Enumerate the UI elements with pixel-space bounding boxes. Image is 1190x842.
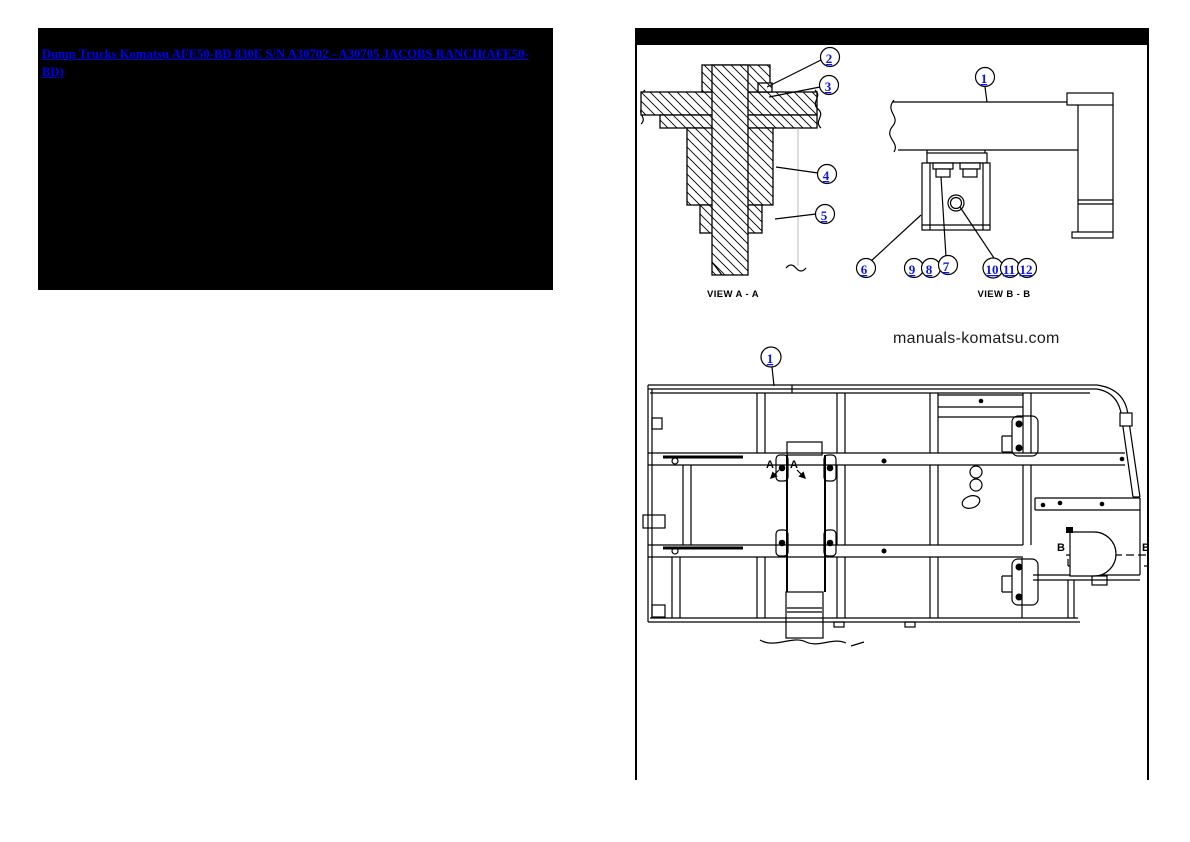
leader-5 [775,214,816,219]
svg-text:11: 11 [1003,262,1015,277]
callout-12[interactable]: 12 [1018,259,1037,278]
view-b-label: VIEW B - B [977,289,1030,300]
canopy [1097,385,1140,497]
leader-2 [767,60,821,87]
svg-text:3: 3 [825,79,832,94]
callout-4[interactable]: 4 [818,165,837,184]
fastener-dots [672,399,1124,554]
cylinder-end [1066,527,1116,585]
section-b-right: B [1142,542,1149,554]
section-b-left: B [1057,542,1065,554]
callout-3[interactable]: 3 [820,76,839,95]
beam-break-wavy [760,640,864,646]
leader-6 [870,215,921,262]
header-black-box: Dump Trucks Komatsu AFE50-BD 830E S/N A3… [38,28,553,290]
svg-text:7: 7 [943,259,950,274]
svg-text:5: 5 [821,208,828,223]
svg-text:6: 6 [861,262,868,277]
svg-text:1: 1 [981,71,988,86]
bottom-feet [834,622,915,627]
leader-4 [776,167,818,173]
view-a-drawing: 2 3 4 5 VIEW A - A [641,48,840,301]
view-a-label: VIEW A - A [707,289,759,300]
leader-1-main [772,367,774,386]
bolt-2-body [963,169,977,177]
section-a-right: A [790,459,798,471]
rail-thick-segments [663,457,743,548]
svg-text:10: 10 [986,262,999,277]
rails [648,453,1125,557]
left-tabs [643,418,665,617]
callout-1-viewb[interactable]: 1 [976,68,995,87]
frame-holes [961,466,982,510]
j-hook-bottom [1002,559,1038,605]
svg-text:1: 1 [767,351,774,366]
center-beam [787,455,825,592]
svg-text:2: 2 [826,51,833,66]
callout-6[interactable]: 6 [857,259,876,278]
column-foot [1072,232,1113,238]
svg-text:8: 8 [926,262,933,277]
pin-shaft [712,65,748,275]
mount-block [922,163,990,230]
column-cap [1067,93,1113,105]
callout-5[interactable]: 5 [816,205,835,224]
beam-box-lines [787,608,822,612]
block-top-plate [927,153,987,163]
section-a-left: A [766,459,774,471]
sheet-top-bar [635,28,1149,45]
callout-1-main[interactable]: 1 [761,347,781,367]
washer [758,83,772,92]
svg-text:4: 4 [823,168,830,183]
callout-8[interactable]: 8 [922,259,941,278]
break-tilde [786,265,806,271]
bolt-2-flange [960,163,980,169]
parts-diagram-svg: 2 3 4 5 VIEW A - A [635,45,1149,780]
beam-break-left [890,100,896,152]
leader-1b [985,87,987,102]
callout-7[interactable]: 7 [939,256,958,275]
frame-outline [648,385,1097,622]
callout-9[interactable]: 9 [905,259,924,278]
bolt-1-flange [933,163,953,169]
beam-brackets [776,455,836,556]
j-hook-top [1002,416,1038,456]
svg-text:12: 12 [1020,262,1033,277]
beam-bottom-box [786,592,823,638]
catalog-link[interactable]: Dump Trucks Komatsu AFE50-BD 830E S/N A3… [42,47,529,79]
bolt-1-body [936,169,950,177]
canopy-latch [1120,413,1132,426]
svg-text:9: 9 [909,262,916,277]
subpanel-lines [938,395,1023,417]
corner-post [1022,558,1074,618]
callout-2[interactable]: 2 [821,48,840,67]
section-a-markers: A A [766,459,805,478]
column-sides [1078,105,1113,232]
view-b-drawing: 1 6 9 8 7 10 11 12 VIEW B - B [857,68,1114,301]
main-drawing: A A [643,347,1149,646]
callout-11[interactable]: 11 [1001,259,1020,278]
